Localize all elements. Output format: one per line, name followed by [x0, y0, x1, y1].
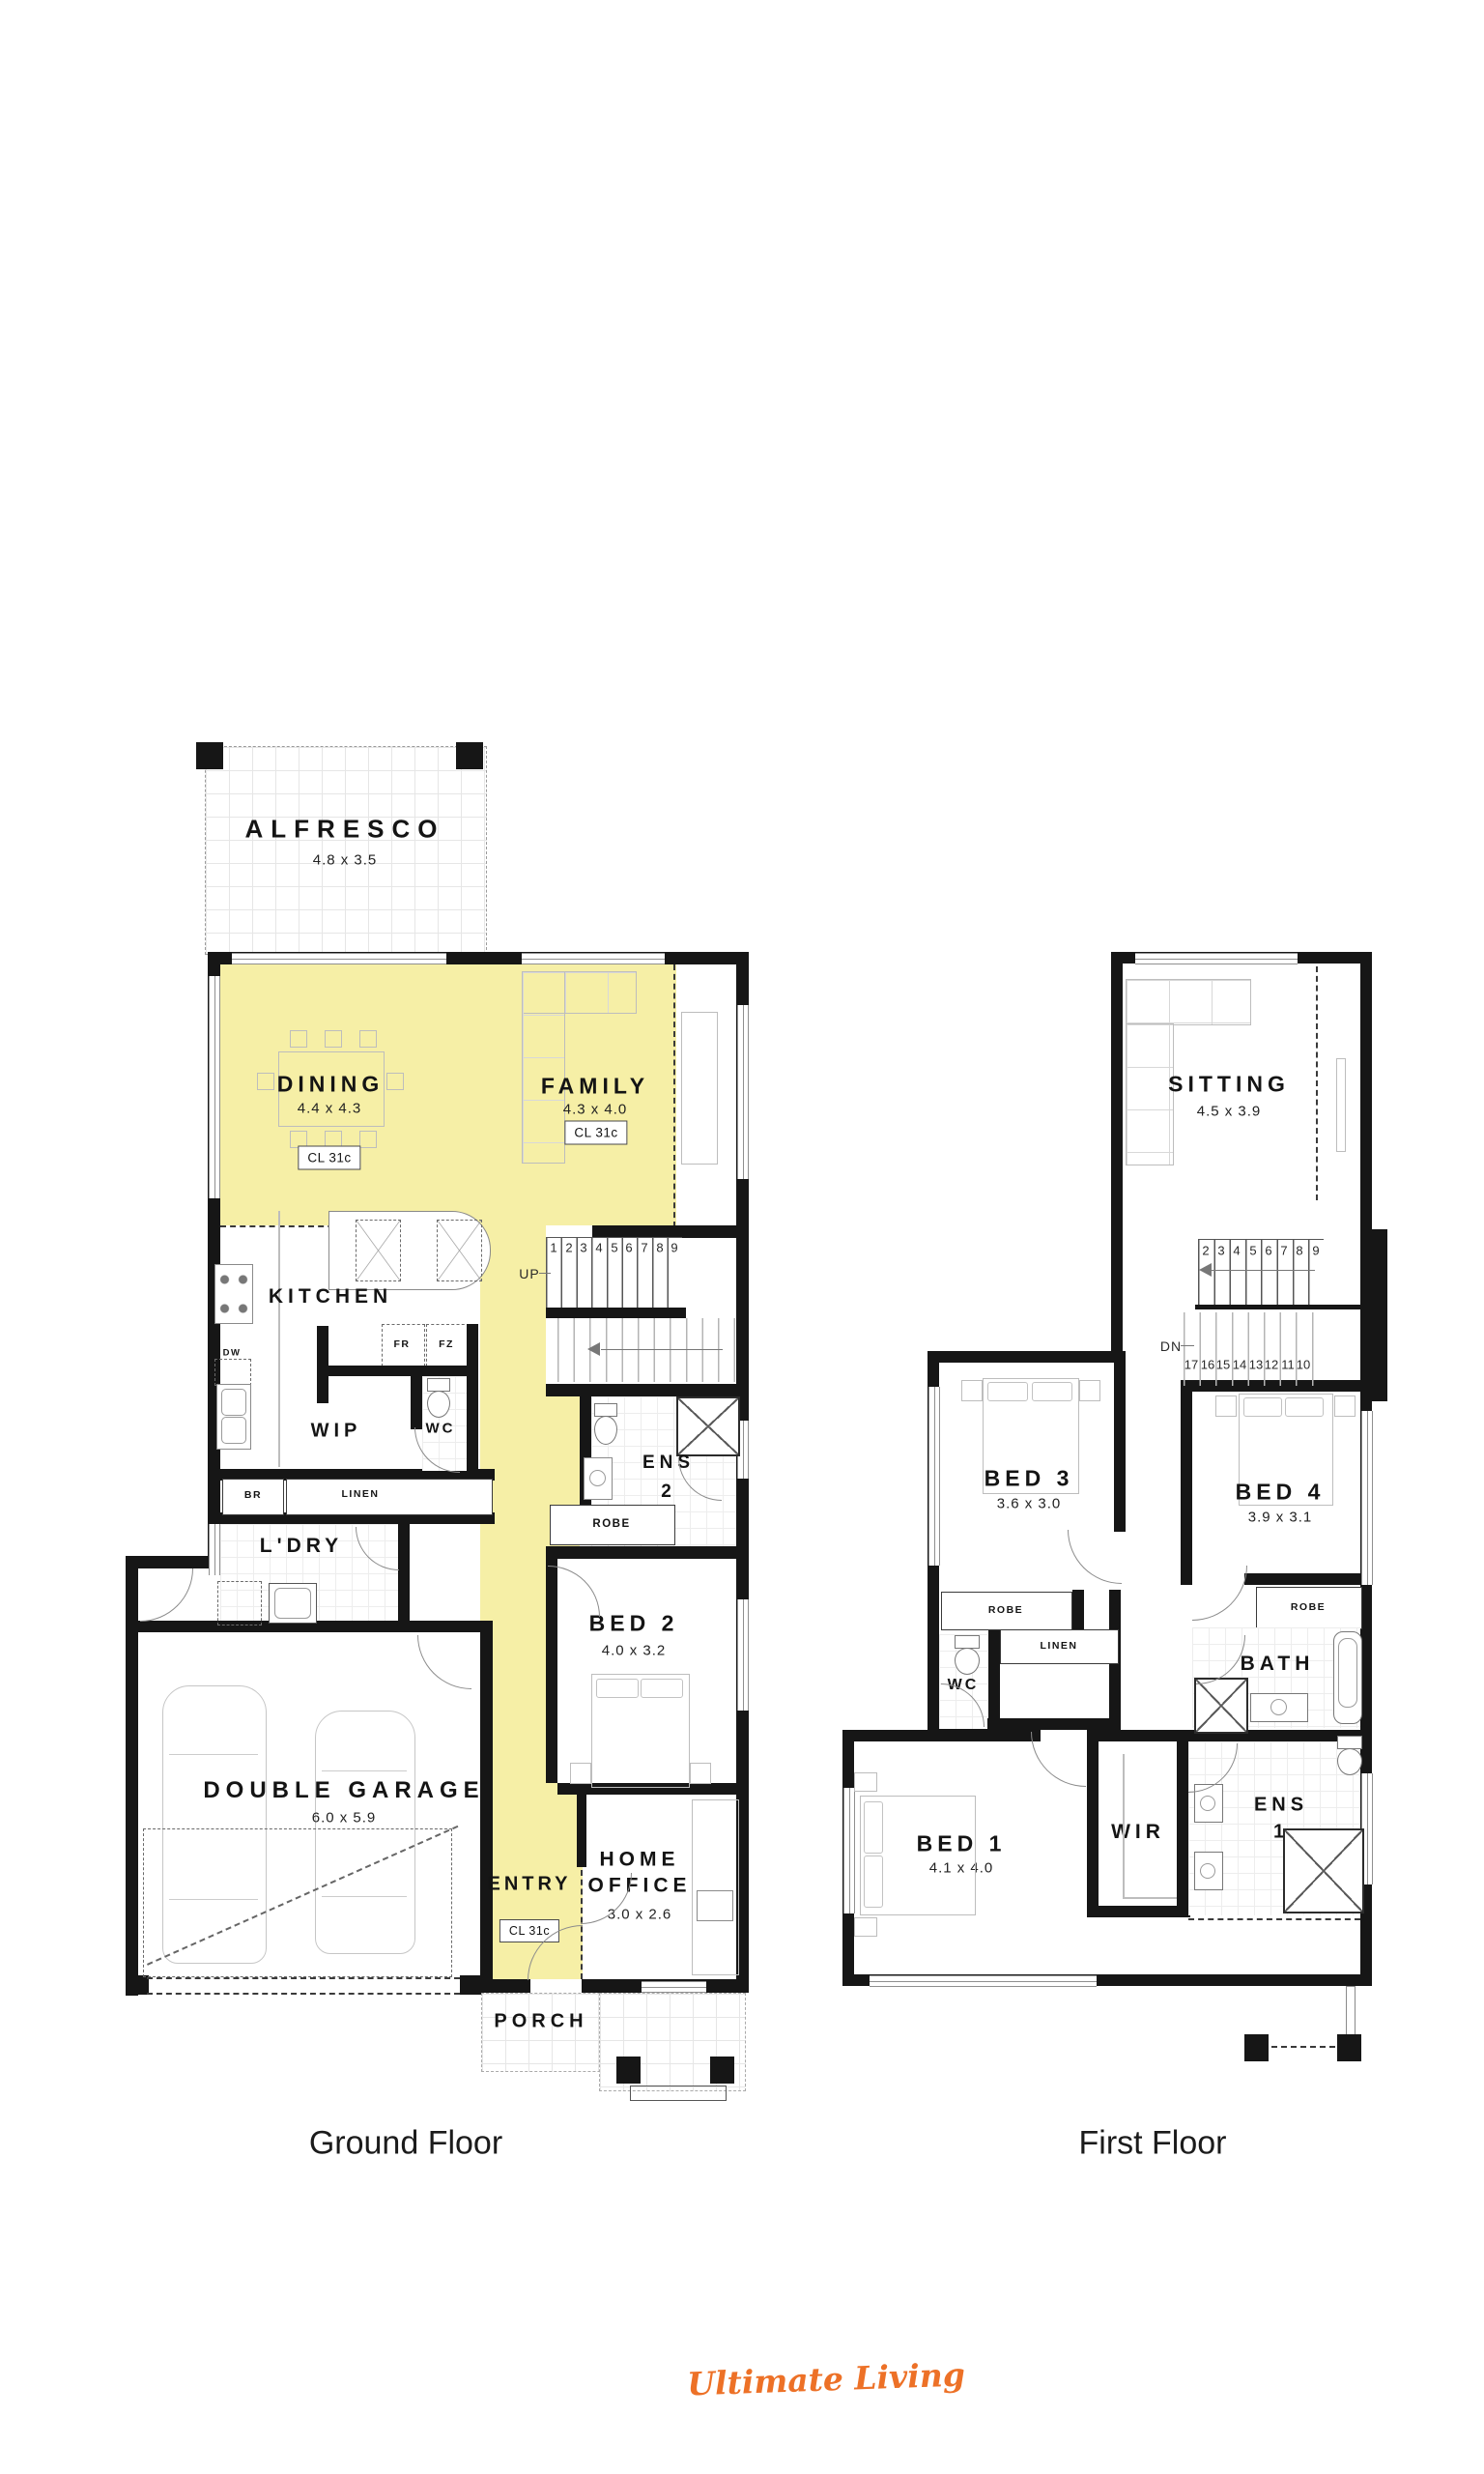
stair-guide: [1211, 1270, 1315, 1271]
shower-icon: [676, 1396, 740, 1456]
stair-arrow-icon: [1199, 1263, 1212, 1277]
stair-number: 10: [1297, 1358, 1310, 1372]
media-void-boundary: [673, 964, 675, 1227]
desk-icon: [692, 1799, 739, 1975]
room-dims-bed2: 4.0 x 3.2: [602, 1643, 667, 1659]
stove-icon: [214, 1264, 253, 1324]
window: [232, 953, 446, 964]
pillow-icon: [864, 1855, 883, 1908]
window: [737, 1005, 749, 1179]
wall: [546, 1384, 749, 1396]
stair-down-label: DN: [1160, 1338, 1182, 1354]
window: [1135, 953, 1298, 964]
laundry-sink-basin: [274, 1588, 311, 1619]
room-dims-bed3: 3.6 x 3.0: [997, 1496, 1062, 1512]
room-label-bed4: BED 4: [1236, 1480, 1326, 1506]
bedside-table-icon: [690, 1763, 711, 1784]
stair-number: 8: [656, 1241, 663, 1255]
stair-number: 9: [1312, 1244, 1319, 1258]
room-label-bed2: BED 2: [589, 1611, 679, 1637]
chair-icon: [325, 1030, 342, 1048]
stair-number: 2: [1202, 1244, 1209, 1258]
stair-up-label: UP: [519, 1266, 539, 1281]
stair-number: 13: [1249, 1358, 1263, 1372]
room-dims-alfresco: 4.8 x 3.5: [313, 852, 378, 869]
bedside-table-icon: [854, 1772, 877, 1792]
stair-number: 5: [1249, 1244, 1256, 1258]
sofa-icon: [522, 971, 565, 1164]
sofa-icon: [1126, 979, 1251, 1025]
stair-number: 5: [611, 1241, 617, 1255]
room-label-family: FAMILY: [541, 1074, 649, 1100]
pillow-icon: [596, 1679, 639, 1698]
toilet-icon: [427, 1378, 450, 1392]
room-label-laundry: L'DRY: [260, 1535, 343, 1558]
chair-icon: [257, 1073, 274, 1090]
bedside-table-icon: [570, 1763, 591, 1784]
wardrobe-shelf: [1123, 1897, 1177, 1899]
stair-number: 6: [1265, 1244, 1271, 1258]
shelf-icon: [1336, 1058, 1346, 1152]
ground-floor-caption: Ground Floor: [309, 2125, 502, 2163]
post: [1337, 2034, 1361, 2061]
window: [1361, 1411, 1373, 1585]
robe-label: ROBE: [1291, 1601, 1326, 1613]
porch-step: [630, 2086, 727, 2101]
room-dims-sitting: 4.5 x 3.9: [1197, 1104, 1262, 1120]
floorplan-canvas: ALFRESCO 4.8 x 3.5: [0, 0, 1484, 2474]
post: [616, 2057, 641, 2084]
door-swing: [140, 1568, 193, 1622]
appliance-icon: [437, 1220, 482, 1281]
ceiling-tag-dining: CL 31c: [298, 1146, 360, 1170]
stair-number: 16: [1201, 1358, 1214, 1372]
sofa-icon: [1126, 1023, 1174, 1165]
wall: [546, 1546, 749, 1559]
stair-number: 3: [580, 1241, 586, 1255]
basin-icon: [1270, 1699, 1287, 1715]
stair-number: 14: [1233, 1358, 1246, 1372]
door-swing: [1192, 1566, 1247, 1621]
wall: [988, 1626, 1000, 1733]
bedside-table-icon: [1334, 1395, 1356, 1417]
stair-number: 3: [1217, 1244, 1224, 1258]
wall: [1244, 1573, 1372, 1585]
post: [710, 2057, 734, 2084]
wall: [126, 1556, 222, 1568]
front-door-opening: [530, 1979, 582, 1993]
room-label-garage: DOUBLE GARAGE: [203, 1777, 484, 1804]
wall: [480, 1979, 749, 1993]
shower-icon: [1283, 1828, 1364, 1913]
stair-number: 12: [1265, 1358, 1278, 1372]
wall: [1177, 1741, 1188, 1915]
stair-number: 8: [1296, 1244, 1302, 1258]
linen-label: LINEN: [1041, 1640, 1078, 1652]
bedside-table-icon: [1215, 1395, 1237, 1417]
room-label-bath: BATH: [1241, 1653, 1315, 1676]
stair-guide: [1181, 1345, 1194, 1346]
post: [456, 742, 483, 769]
porch-roof-line: [1271, 2046, 1335, 2048]
basin-icon: [1200, 1863, 1215, 1879]
stair-landing-edge: [1195, 1305, 1360, 1309]
stair-number: 4: [1233, 1244, 1240, 1258]
wall: [411, 1376, 422, 1429]
window: [209, 1517, 220, 1575]
void-boundary: [1316, 966, 1318, 1200]
wall: [1181, 1380, 1192, 1585]
toilet-icon: [594, 1403, 617, 1417]
room-label-bed3: BED 3: [985, 1466, 1074, 1492]
room-label-porch: PORCH: [494, 2011, 587, 2033]
stair-guide: [539, 1273, 551, 1274]
stair-number: 6: [625, 1241, 632, 1255]
room-label-alfresco: ALFRESCO: [245, 815, 445, 845]
bedside-table-icon: [961, 1380, 983, 1401]
chair-icon: [359, 1131, 377, 1148]
bedside-table-icon: [854, 1917, 877, 1937]
window: [209, 976, 220, 1198]
wall: [1114, 1363, 1126, 1532]
robe-label: ROBE: [988, 1604, 1023, 1616]
wall: [467, 1324, 478, 1479]
appliance-icon: [217, 1581, 262, 1625]
room-label-dining: DINING: [277, 1072, 385, 1098]
wall: [398, 1524, 410, 1621]
room-dims-garage: 6.0 x 5.9: [312, 1810, 377, 1827]
wall: [1087, 1741, 1099, 1915]
window: [870, 1975, 1097, 1987]
dishwasher-label: DW: [223, 1348, 242, 1359]
toilet-icon: [1337, 1736, 1362, 1749]
window: [522, 953, 665, 964]
room-number-ens2: 2: [661, 1482, 676, 1503]
ceiling-tag-family: CL 31c: [564, 1121, 627, 1145]
brand-logo: Ultimate Living: [687, 2355, 966, 2402]
door-swing: [1068, 1530, 1122, 1584]
basin-icon: [589, 1470, 606, 1486]
room-label-kitchen: KITCHEN: [269, 1285, 392, 1309]
wall: [927, 1351, 1126, 1363]
stair-arrow-icon: [587, 1342, 600, 1356]
dishwasher-icon: [214, 1359, 251, 1386]
room-dims-bed4: 3.9 x 3.1: [1248, 1510, 1313, 1526]
driveway-outline: [143, 1828, 452, 1977]
room-label-wip: WIP: [311, 1421, 362, 1443]
toilet-icon: [955, 1635, 980, 1649]
broom-label: BR: [244, 1489, 262, 1501]
bedside-table-icon: [1079, 1380, 1100, 1401]
wall: [842, 1730, 1041, 1741]
stair-treads-lower: [1184, 1312, 1324, 1386]
stair-guide: [601, 1349, 723, 1350]
garage-door-line: [147, 1977, 460, 1979]
pillow-icon: [641, 1679, 683, 1698]
chair-icon: [290, 1030, 307, 1048]
room-dims-dining: 4.4 x 4.3: [298, 1101, 362, 1117]
chair-icon: [386, 1073, 404, 1090]
alfresco-paving: [205, 746, 487, 955]
pillow-icon: [864, 1801, 883, 1854]
wardrobe-shelf: [1123, 1754, 1125, 1899]
door-swing: [1031, 1732, 1086, 1787]
linen-cupboard: [286, 1479, 493, 1515]
media-unit-icon: [681, 1012, 718, 1165]
pillow-icon: [1243, 1397, 1282, 1417]
door-swing: [417, 1635, 471, 1689]
stair-number: 17: [1184, 1358, 1198, 1372]
freezer-label: FZ: [439, 1338, 454, 1350]
window: [642, 1981, 706, 1993]
stair-treads-lower: [557, 1318, 737, 1382]
post: [1244, 2034, 1269, 2061]
basin-icon: [1200, 1796, 1215, 1811]
window: [737, 1599, 749, 1711]
garage-door-line: [147, 1993, 460, 1995]
post-connector: [1346, 1986, 1356, 2036]
pillow-icon: [1285, 1397, 1324, 1417]
window: [843, 1788, 855, 1913]
post: [196, 742, 223, 769]
pillow-icon: [987, 1382, 1028, 1401]
wall: [126, 1975, 149, 1995]
stair-number: 15: [1216, 1358, 1230, 1372]
stair-number: 7: [1280, 1244, 1287, 1258]
chair-icon: [359, 1030, 377, 1048]
wall: [1111, 952, 1123, 1363]
wall: [322, 1366, 469, 1376]
pillow-icon: [1032, 1382, 1072, 1401]
car-windshield: [169, 1754, 258, 1755]
room-label-sitting: SITTING: [1168, 1072, 1290, 1098]
wall: [1087, 1906, 1190, 1917]
bathtub-inner: [1338, 1638, 1357, 1708]
stair-number: 7: [641, 1241, 647, 1255]
stair-number: 1: [550, 1241, 556, 1255]
robe-label: ROBE: [592, 1518, 630, 1530]
wall: [1372, 1229, 1387, 1401]
wall: [126, 1556, 138, 1996]
window: [928, 1387, 940, 1566]
appliance-icon: [356, 1220, 401, 1281]
first-floor-caption: First Floor: [1079, 2125, 1227, 2163]
room-label-ens1: ENS: [1254, 1795, 1308, 1817]
sink-basin: [221, 1417, 246, 1444]
door-swing: [548, 1566, 600, 1617]
stair-number: 11: [1281, 1358, 1295, 1372]
room-dims-family: 4.3 x 4.0: [563, 1102, 628, 1118]
wall: [546, 1308, 686, 1318]
wall: [317, 1326, 328, 1403]
wall: [480, 1632, 493, 1980]
stair-number: 2: [565, 1241, 572, 1255]
ens1-open-edge: [1188, 1918, 1360, 1920]
computer-icon: [697, 1890, 733, 1921]
bench-edge: [278, 1211, 280, 1467]
fridge-label: FR: [394, 1338, 411, 1350]
sink-basin: [221, 1389, 246, 1416]
shower-icon: [1194, 1678, 1248, 1734]
car-windshield: [322, 1770, 407, 1771]
stair-number: 4: [595, 1241, 602, 1255]
stair-number: 9: [671, 1241, 677, 1255]
room-label-wir: WIR: [1111, 1821, 1165, 1844]
linen-label: LINEN: [342, 1488, 380, 1500]
